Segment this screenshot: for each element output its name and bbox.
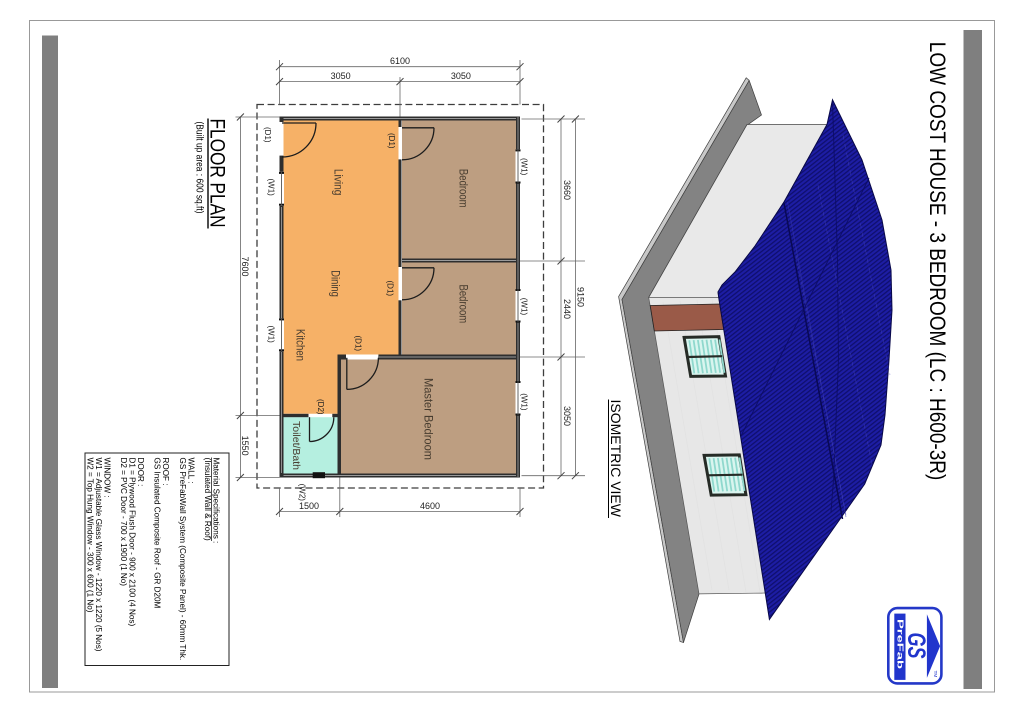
svg-text:Living: Living bbox=[331, 169, 345, 196]
svg-text:(D1): (D1) bbox=[387, 133, 396, 149]
svg-text:(W1): (W1) bbox=[520, 158, 529, 176]
svg-text:W2 = Top Hung Window - 300 x 6: W2 = Top Hung Window - 300 x 600 (1 No) bbox=[86, 458, 95, 613]
svg-text:(Insulated Wall & Roof): (Insulated Wall & Roof) bbox=[203, 458, 212, 542]
svg-text:3660: 3660 bbox=[562, 180, 572, 200]
svg-text:D2 = PVC Door - 700 x 1900 (1: D2 = PVC Door - 700 x 1900 (1 No) bbox=[119, 458, 128, 587]
svg-text:2440: 2440 bbox=[562, 299, 572, 319]
svg-text:1550: 1550 bbox=[240, 436, 250, 456]
svg-text:7600: 7600 bbox=[240, 256, 250, 276]
svg-text:GS Insulated Composite Roof -: GS Insulated Composite Roof - GR D20M bbox=[153, 458, 162, 609]
svg-text:GS PreFabWall System (Composit: GS PreFabWall System (Composite Panel) -… bbox=[178, 458, 187, 661]
svg-text:1500: 1500 bbox=[299, 501, 319, 511]
svg-text:Toilet/Bath: Toilet/Bath bbox=[290, 421, 302, 470]
svg-text:(W1): (W1) bbox=[520, 393, 529, 411]
svg-text:(D2): (D2) bbox=[316, 399, 325, 415]
svg-text:9150: 9150 bbox=[575, 287, 585, 307]
svg-text:GS: GS bbox=[902, 633, 930, 659]
svg-text:Bedroom: Bedroom bbox=[456, 285, 470, 324]
svg-text:LOW COST HOUSE - 3 BEDROOM (LC: LOW COST HOUSE - 3 BEDROOM (LC : H600-3R… bbox=[925, 42, 950, 481]
svg-text:4600: 4600 bbox=[420, 501, 440, 511]
svg-text:Master Bedroom: Master Bedroom bbox=[422, 378, 436, 460]
svg-text:Dining: Dining bbox=[329, 270, 343, 297]
svg-text:(Built up area : 600 sq.ft): (Built up area : 600 sq.ft) bbox=[194, 122, 206, 214]
svg-text:FLOOR PLAN: FLOOR PLAN bbox=[205, 119, 229, 228]
svg-text:6100: 6100 bbox=[390, 56, 410, 66]
svg-text:ISOMETRIC VIEW: ISOMETRIC VIEW bbox=[608, 400, 624, 518]
svg-text:(D1): (D1) bbox=[354, 336, 363, 352]
svg-text:(D1): (D1) bbox=[386, 281, 395, 297]
svg-text:(W1): (W1) bbox=[520, 298, 529, 316]
svg-text:3050: 3050 bbox=[562, 406, 572, 426]
svg-text:(W1): (W1) bbox=[267, 179, 276, 197]
svg-text:3050: 3050 bbox=[331, 71, 351, 81]
svg-text:(D1): (D1) bbox=[263, 127, 272, 143]
svg-text:3050: 3050 bbox=[451, 71, 471, 81]
svg-text:Bedroom: Bedroom bbox=[456, 169, 470, 208]
svg-text:(W2): (W2) bbox=[298, 484, 307, 502]
svg-text:(W1): (W1) bbox=[267, 326, 276, 344]
svg-text:TM: TM bbox=[932, 671, 938, 678]
svg-text:Kitchen: Kitchen bbox=[294, 329, 308, 361]
